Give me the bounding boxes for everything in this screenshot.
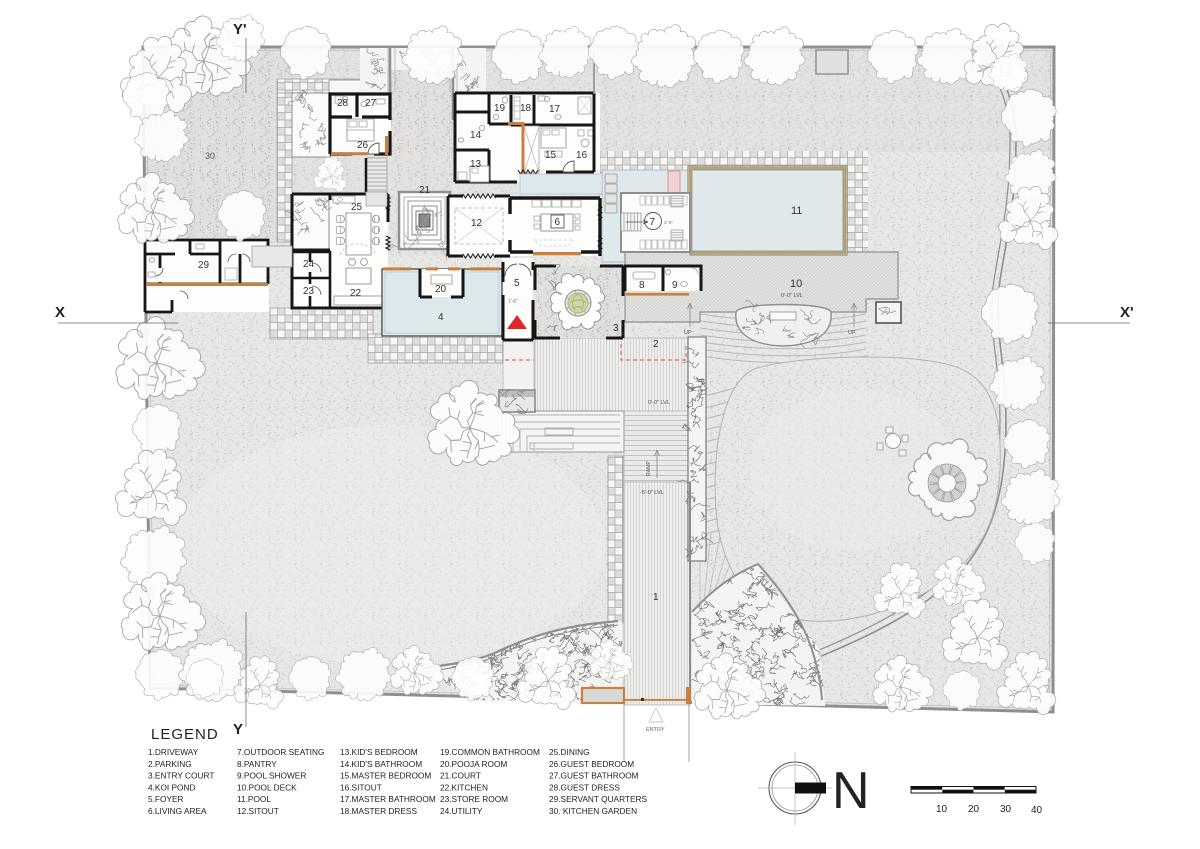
svg-text:18.MASTER DRESS: 18.MASTER DRESS: [340, 806, 417, 816]
svg-text:7: 7: [650, 217, 656, 228]
svg-text:29.SERVANT QUARTERS: 29.SERVANT QUARTERS: [549, 794, 648, 804]
svg-text:14.KID'S BATHROOM: 14.KID'S BATHROOM: [340, 759, 422, 769]
svg-text:13.KID'S BEDROOM: 13.KID'S BEDROOM: [340, 747, 418, 757]
svg-text:4: 4: [438, 312, 444, 323]
svg-text:20: 20: [435, 284, 447, 295]
svg-text:24.UTILITY: 24.UTILITY: [440, 806, 483, 816]
svg-text:0'-0" LVL: 0'-0" LVL: [781, 293, 803, 299]
svg-text:2.PARKING: 2.PARKING: [148, 759, 192, 769]
svg-text:23: 23: [303, 286, 315, 297]
svg-text:0'-0" LVL: 0'-0" LVL: [648, 400, 670, 406]
svg-text:15.MASTER BEDROOM: 15.MASTER BEDROOM: [340, 771, 431, 781]
svg-text:3: 3: [613, 323, 619, 334]
svg-text:Y': Y': [233, 21, 247, 38]
svg-text:X: X: [55, 304, 65, 321]
svg-text:21: 21: [419, 185, 431, 196]
svg-text:UP: UP: [684, 330, 692, 336]
svg-text:4.KOI POND: 4.KOI POND: [148, 782, 196, 792]
svg-text:27.GUEST BATHROOM: 27.GUEST BATHROOM: [549, 771, 639, 781]
svg-text:28.GUEST DRESS: 28.GUEST DRESS: [549, 782, 620, 792]
svg-text:24: 24: [303, 259, 315, 270]
svg-text:8.PANTRY: 8.PANTRY: [237, 759, 277, 769]
svg-text:22: 22: [350, 288, 362, 299]
svg-text:1'-6": 1'-6": [508, 299, 518, 305]
svg-text:28: 28: [337, 98, 349, 109]
svg-text:9.POOL SHOWER: 9.POOL SHOWER: [237, 771, 306, 781]
svg-text:22.KITCHEN: 22.KITCHEN: [440, 782, 488, 792]
svg-text:6: 6: [555, 217, 561, 228]
svg-text:21.COURT: 21.COURT: [440, 771, 481, 781]
svg-text:RAMP: RAMP: [646, 460, 652, 476]
svg-text:26: 26: [357, 140, 369, 151]
svg-text:1.DRIVEWAY: 1.DRIVEWAY: [148, 747, 199, 757]
svg-text:27: 27: [365, 98, 377, 109]
svg-text:30. KITCHEN GARDEN: 30. KITCHEN GARDEN: [549, 806, 637, 816]
svg-text:26.GUEST BEDROOM: 26.GUEST BEDROOM: [549, 759, 634, 769]
svg-text:25: 25: [351, 202, 363, 213]
svg-text:10: 10: [790, 278, 802, 290]
svg-text:ENTRY: ENTRY: [646, 727, 665, 733]
svg-text:19: 19: [494, 103, 506, 114]
svg-text:20.POOJA ROOM: 20.POOJA ROOM: [440, 759, 507, 769]
svg-text:2'-6": 2'-6": [664, 220, 673, 225]
svg-text:12.SITOUT: 12.SITOUT: [237, 806, 279, 816]
svg-text:23.STORE ROOM: 23.STORE ROOM: [440, 794, 508, 804]
svg-text:30: 30: [205, 151, 215, 161]
svg-text:6.LIVING AREA: 6.LIVING AREA: [148, 806, 207, 816]
svg-text:13: 13: [470, 159, 482, 170]
svg-text:16: 16: [576, 150, 588, 161]
svg-text:5.FOYER: 5.FOYER: [148, 794, 184, 804]
svg-text:1: 1: [653, 592, 659, 603]
svg-text:Y: Y: [233, 721, 243, 738]
svg-text:16.SITOUT: 16.SITOUT: [340, 782, 382, 792]
svg-text:9: 9: [672, 280, 678, 291]
svg-text:3.ENTRY COURT: 3.ENTRY COURT: [148, 771, 214, 781]
svg-text:X': X': [1120, 304, 1134, 321]
svg-text:30: 30: [1000, 804, 1012, 815]
svg-text:25.DINING: 25.DINING: [549, 747, 590, 757]
svg-text:LEGEND: LEGEND: [151, 726, 219, 743]
svg-text:20: 20: [968, 804, 980, 815]
svg-text:18: 18: [520, 103, 532, 114]
svg-text:17: 17: [549, 104, 561, 115]
svg-text:19.COMMON BATHROOM: 19.COMMON BATHROOM: [440, 747, 540, 757]
svg-text:14: 14: [470, 130, 482, 141]
svg-text:17.MASTER BATHROOM: 17.MASTER BATHROOM: [340, 794, 436, 804]
svg-text:15: 15: [545, 150, 557, 161]
svg-text:10: 10: [936, 804, 948, 815]
svg-text:5: 5: [514, 278, 520, 289]
svg-text:12: 12: [471, 218, 483, 229]
svg-text:N: N: [832, 762, 870, 820]
svg-text:-5'-0" LVL: -5'-0" LVL: [640, 490, 664, 496]
svg-text:2: 2: [653, 339, 659, 350]
svg-text:7.OUTDOOR SEATING: 7.OUTDOOR SEATING: [237, 747, 324, 757]
svg-text:11.POOL: 11.POOL: [237, 794, 271, 804]
svg-text:8: 8: [639, 280, 645, 291]
svg-text:40: 40: [1031, 805, 1043, 816]
svg-text:11: 11: [791, 205, 802, 217]
svg-text:29: 29: [198, 260, 210, 271]
svg-text:10.POOL DECK: 10.POOL DECK: [237, 782, 297, 792]
svg-text:UP: UP: [848, 330, 856, 336]
